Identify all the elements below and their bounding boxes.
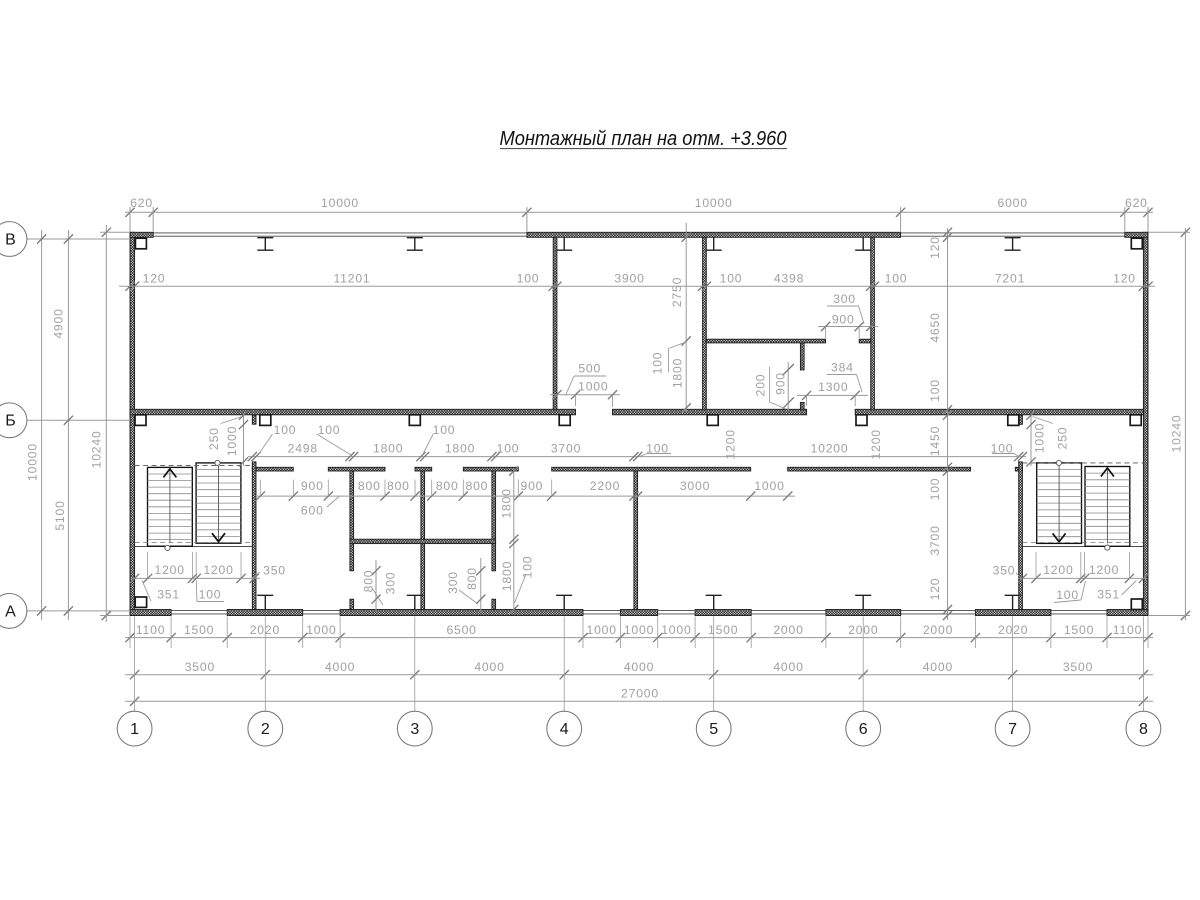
svg-text:10000: 10000 [695,196,733,210]
svg-text:1000: 1000 [661,623,691,637]
svg-text:3500: 3500 [185,660,215,674]
svg-text:3000: 3000 [680,479,710,493]
svg-text:4398: 4398 [774,272,804,286]
svg-text:351: 351 [1097,587,1120,601]
svg-text:10000: 10000 [321,196,359,210]
svg-text:800: 800 [387,479,410,493]
svg-text:4000: 4000 [325,660,355,674]
svg-text:900: 900 [773,372,787,395]
svg-text:7201: 7201 [995,272,1025,286]
svg-text:1800: 1800 [670,358,684,388]
svg-text:5100: 5100 [53,500,67,530]
svg-text:2000: 2000 [773,623,803,637]
svg-text:1200: 1200 [869,429,883,459]
svg-text:1800: 1800 [373,441,403,455]
svg-text:1200: 1200 [1043,563,1073,577]
svg-text:4000: 4000 [624,660,654,674]
svg-text:250: 250 [207,427,221,450]
svg-text:800: 800 [358,479,381,493]
svg-text:500: 500 [578,362,601,376]
svg-text:4: 4 [560,721,569,738]
svg-text:4900: 4900 [51,308,65,338]
svg-text:3900: 3900 [614,272,644,286]
svg-text:800: 800 [466,479,489,493]
svg-text:120: 120 [928,236,942,259]
svg-text:3700: 3700 [928,525,942,555]
svg-text:100: 100 [1056,588,1079,602]
svg-text:100: 100 [650,352,664,375]
svg-text:300: 300 [833,292,856,306]
svg-text:2000: 2000 [923,623,953,637]
svg-text:4650: 4650 [928,312,942,342]
svg-text:1100: 1100 [1113,623,1142,637]
svg-text:5: 5 [709,721,718,738]
svg-text:1500: 1500 [708,623,738,637]
svg-text:120: 120 [1113,272,1136,286]
svg-text:1300: 1300 [818,380,848,394]
svg-text:800: 800 [361,570,375,593]
svg-text:4000: 4000 [773,660,803,674]
svg-text:Б: Б [5,413,16,430]
svg-text:3700: 3700 [551,441,581,455]
svg-text:1000: 1000 [754,479,784,493]
svg-text:120: 120 [143,272,166,286]
svg-text:300: 300 [383,572,397,595]
svg-text:1000: 1000 [306,623,336,637]
svg-text:1000: 1000 [624,623,654,637]
svg-text:120: 120 [928,578,942,601]
svg-text:1800: 1800 [499,488,513,518]
svg-text:1: 1 [130,721,139,738]
svg-text:10200: 10200 [811,441,849,455]
svg-text:2750: 2750 [670,277,684,307]
svg-text:100: 100 [928,478,942,501]
svg-text:4000: 4000 [474,660,504,674]
svg-text:2020: 2020 [998,623,1028,637]
svg-text:100: 100 [517,272,540,286]
svg-text:100: 100 [520,556,534,579]
svg-text:100: 100 [274,423,297,437]
svg-text:1200: 1200 [155,563,185,577]
svg-text:1100: 1100 [136,623,165,637]
svg-text:А: А [5,603,16,620]
svg-text:900: 900 [301,479,324,493]
svg-text:300: 300 [446,571,460,594]
svg-text:200: 200 [753,374,767,397]
svg-text:1000: 1000 [225,426,239,456]
svg-text:4000: 4000 [923,660,953,674]
svg-text:900: 900 [521,479,544,493]
svg-text:1000: 1000 [1032,423,1046,453]
svg-text:100: 100 [885,272,908,286]
svg-text:11201: 11201 [334,272,371,286]
svg-text:1800: 1800 [445,441,475,455]
svg-text:100: 100 [199,587,222,601]
svg-text:1200: 1200 [1089,563,1119,577]
svg-text:10240: 10240 [1169,415,1183,453]
svg-text:1200: 1200 [203,563,233,577]
svg-text:350: 350 [263,563,286,577]
svg-text:2200: 2200 [590,479,620,493]
svg-text:1500: 1500 [184,623,214,637]
svg-text:3: 3 [410,721,419,738]
svg-text:10000: 10000 [25,443,39,481]
svg-text:3500: 3500 [1063,660,1093,674]
svg-text:Монтажный план на отм. +3.960: Монтажный план на отм. +3.960 [500,127,788,150]
svg-text:6500: 6500 [446,623,476,637]
svg-text:27000: 27000 [621,687,659,701]
svg-text:100: 100 [497,441,520,455]
svg-text:1500: 1500 [1064,623,1094,637]
svg-text:1000: 1000 [578,380,608,394]
svg-text:6000: 6000 [998,196,1028,210]
svg-text:2498: 2498 [288,441,318,455]
svg-text:100: 100 [928,379,942,402]
svg-text:1000: 1000 [587,623,617,637]
svg-text:В: В [5,231,16,248]
svg-text:100: 100 [433,423,456,437]
svg-text:351: 351 [157,587,180,601]
svg-text:10240: 10240 [89,430,103,468]
svg-text:384: 384 [831,361,854,375]
svg-text:900: 900 [832,312,855,326]
svg-text:2: 2 [261,721,270,738]
svg-text:1800: 1800 [500,561,514,591]
svg-text:350: 350 [993,563,1016,577]
svg-text:8: 8 [1139,721,1148,738]
svg-text:600: 600 [301,503,324,517]
svg-text:1450: 1450 [928,426,942,456]
svg-text:250: 250 [1055,427,1069,450]
svg-text:100: 100 [720,272,743,286]
svg-text:100: 100 [318,423,341,437]
svg-text:6: 6 [859,721,868,738]
svg-text:1200: 1200 [723,429,737,459]
svg-text:800: 800 [465,567,479,590]
svg-text:7: 7 [1008,721,1017,738]
svg-text:620: 620 [130,196,153,210]
svg-text:800: 800 [436,479,459,493]
svg-text:620: 620 [1125,196,1148,210]
